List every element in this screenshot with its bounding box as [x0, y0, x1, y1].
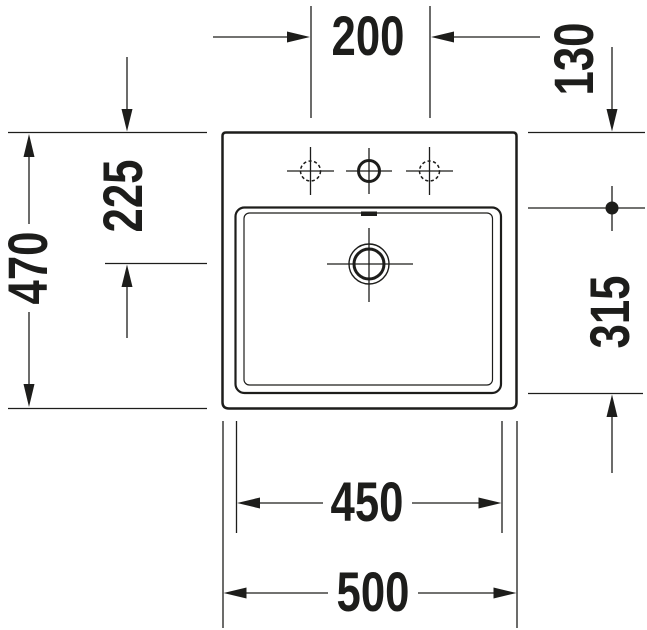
dim-label-tap-hole-spacing: 200: [332, 8, 405, 64]
technical-drawing-page: 200 130 225 470 315 450 500: [0, 0, 647, 630]
tap-hole-left: [287, 147, 334, 195]
drain: [327, 228, 413, 302]
basin-rim-inner: [244, 213, 493, 385]
overflow-mark: [361, 212, 377, 217]
dim-label-front-edge-to-drain: 225: [95, 160, 151, 233]
tap-hole-center: [346, 148, 392, 194]
dimension-315-lines: [528, 394, 643, 474]
dim-label-rim-to-basin-back: 315: [582, 276, 638, 349]
basin-rim-outer: [236, 208, 502, 394]
reference-dot: [528, 186, 645, 231]
dim-label-overall-depth: 470: [0, 232, 56, 305]
dim-label-front-edge-to-rim: 130: [546, 23, 602, 96]
tap-hole-right: [406, 147, 453, 195]
dim-label-overall-width: 500: [337, 564, 410, 620]
dim-label-basin-width: 450: [331, 474, 404, 530]
